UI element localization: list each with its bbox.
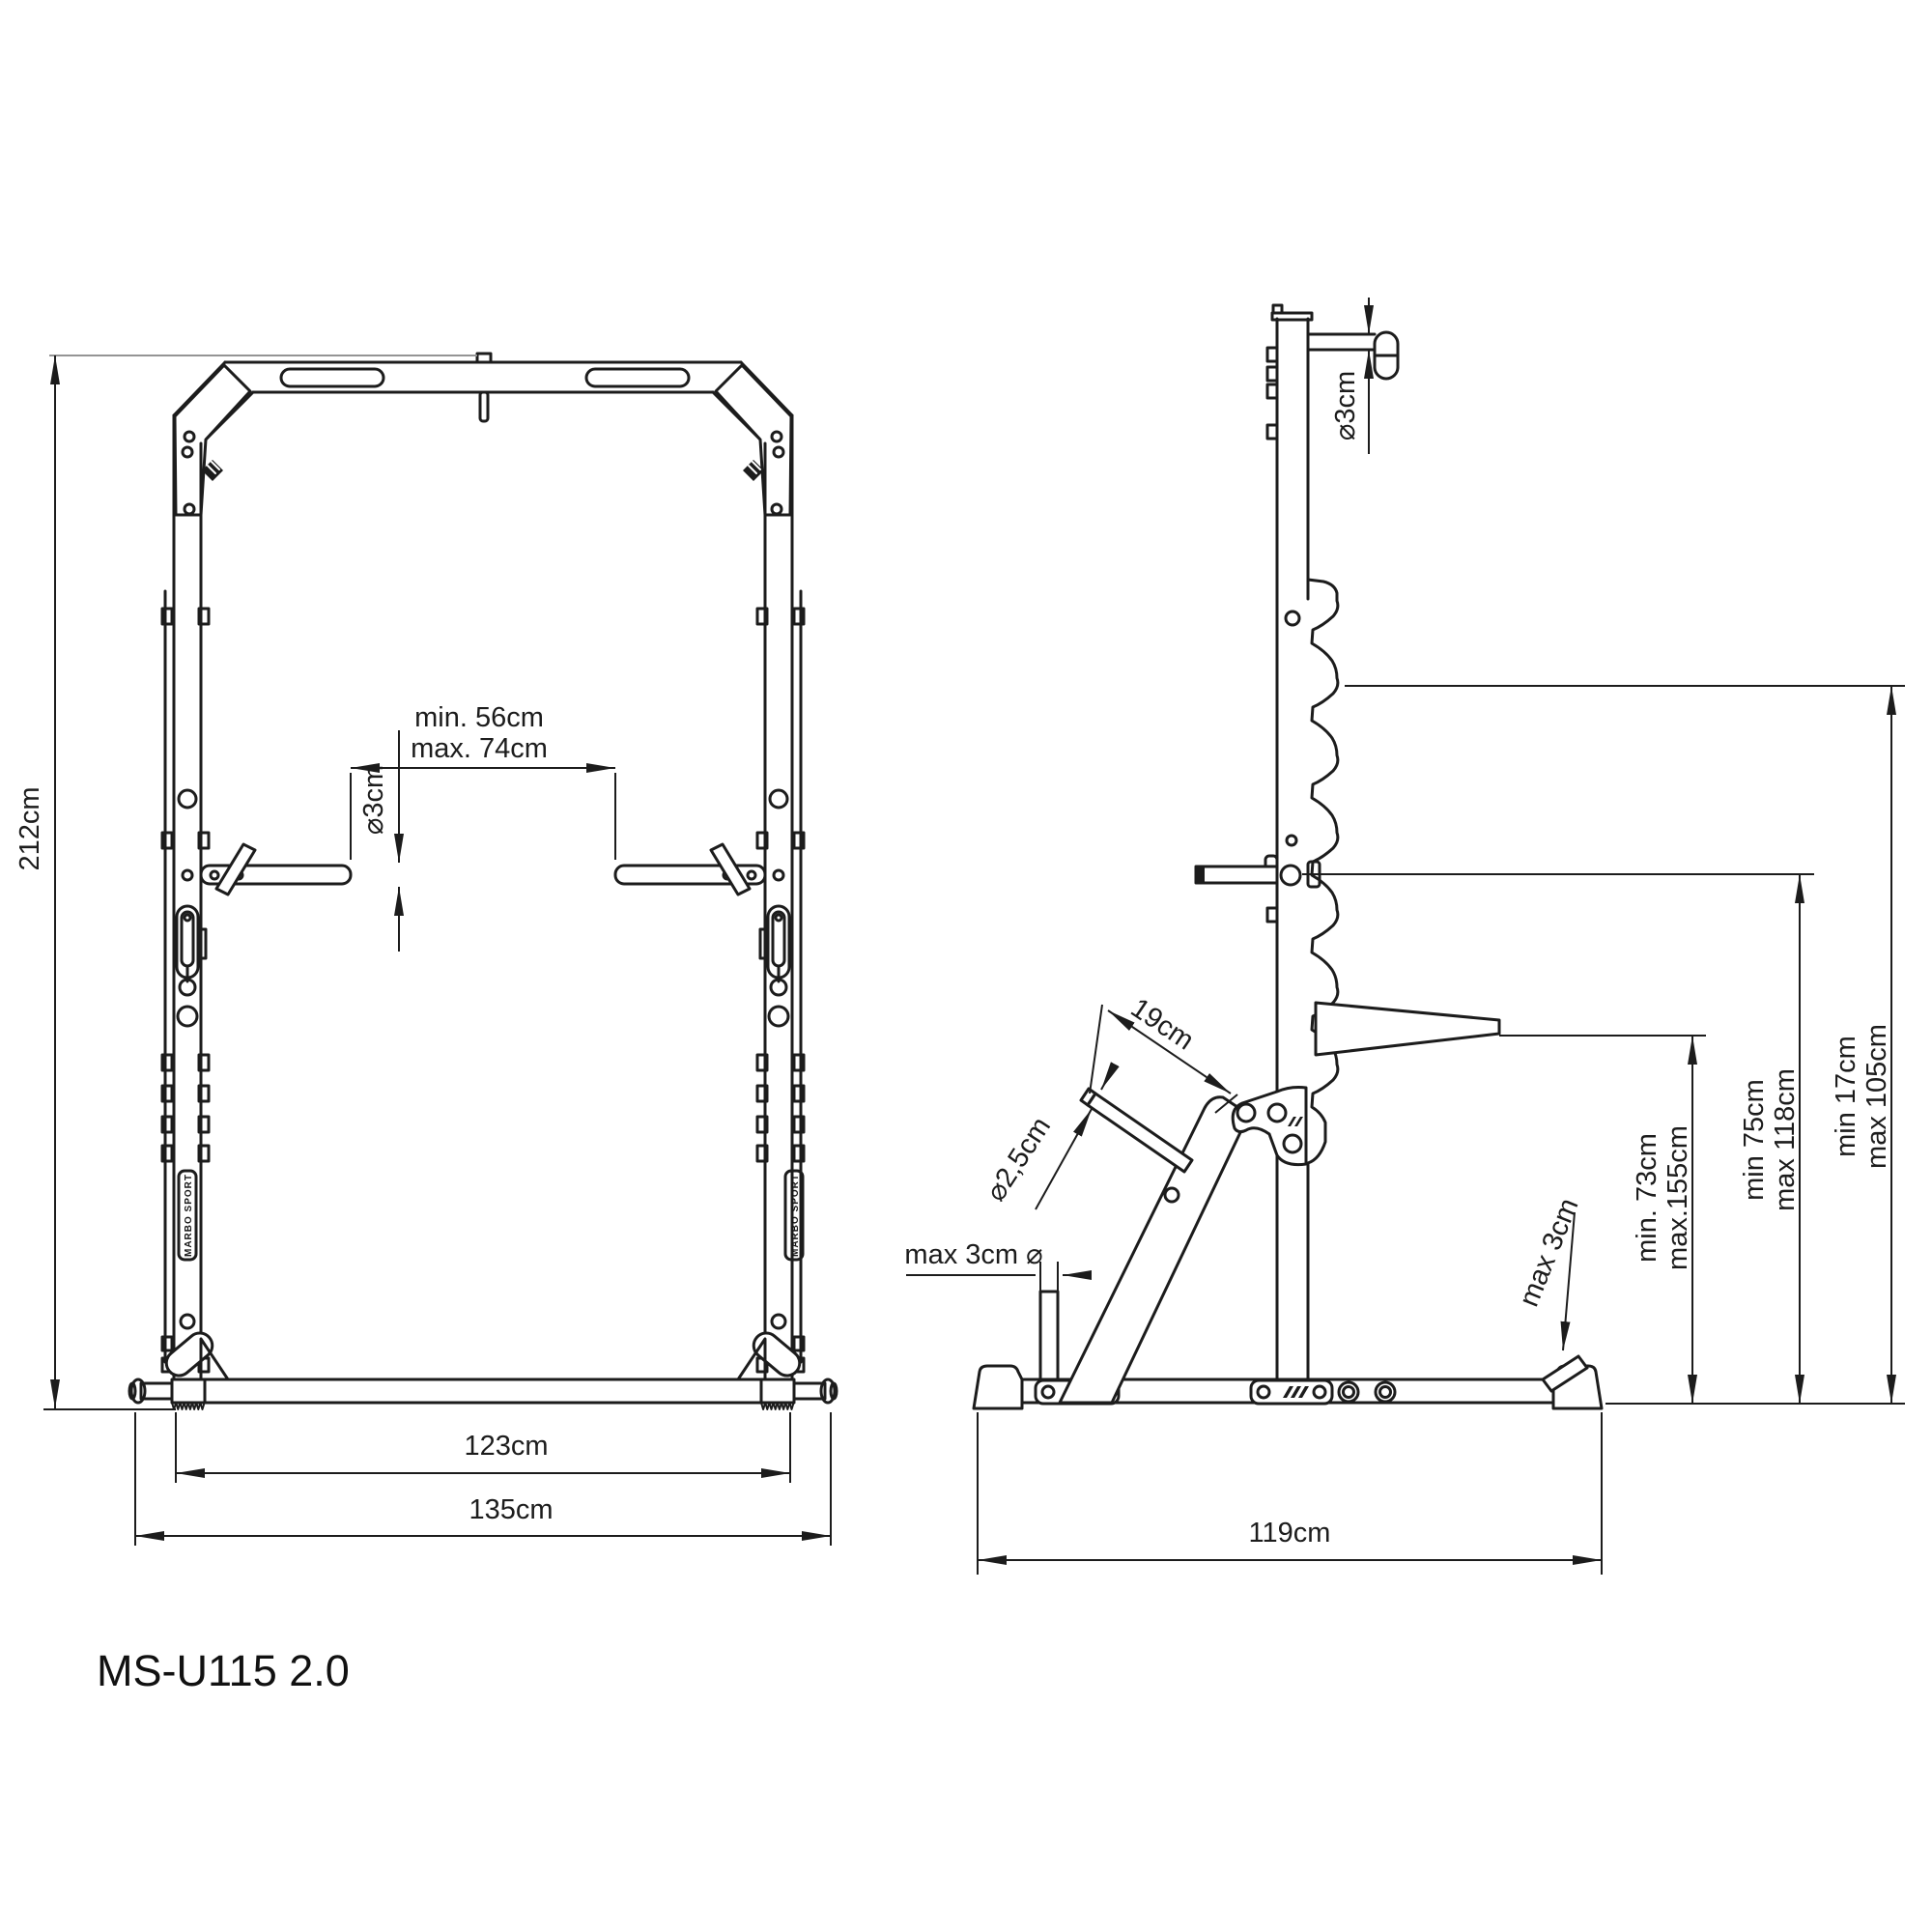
dim-spotter-min-label: min. 73cm (1632, 1133, 1662, 1263)
grip-slot-left (281, 369, 384, 386)
upright-right-features (615, 609, 804, 1372)
j-cup-lever-right (711, 844, 750, 895)
side-view: ⌀3cm 19cm ⌀2,5cm max 3cm ⌀ max 3cm min. … (904, 298, 1905, 1575)
dim-inner-width-label: 123cm (464, 1431, 548, 1462)
dim-storage-max-label: max 105cm (1861, 1024, 1892, 1169)
dim-spotter-max-label: max.155cm (1662, 1125, 1693, 1270)
dim-jcup-max-label: max 118cm (1770, 1068, 1801, 1211)
j-cup-lever-left (216, 844, 255, 895)
j-cup-side (1196, 862, 1320, 887)
front-view: MARBO SPORT MARBO SPORT 212cm min. 56cm … (14, 354, 837, 1546)
dim-hook-spacing-min: min. 56cm (414, 702, 544, 733)
corner-gusset-left (175, 365, 250, 515)
front-base (129, 1328, 837, 1409)
side-foot-front (974, 1366, 1022, 1408)
dim-pullup-diameter-label: ⌀3cm (1330, 371, 1361, 440)
spotter-shelf (1316, 1003, 1499, 1055)
dim-base-depth-label: 119cm (1249, 1518, 1331, 1548)
dim-hook-spacing-max: max. 74cm (411, 733, 548, 764)
center-tab (477, 354, 491, 362)
foot-left (129, 1328, 228, 1409)
foot-right (738, 1328, 837, 1409)
corner-gusset-right (716, 365, 791, 515)
dim-peg-diameter-label: max 3cm ⌀ (904, 1239, 1042, 1270)
brand-sticker-text-left: MARBO SPORT (184, 1174, 194, 1257)
dim-height-label: 212cm (14, 786, 45, 870)
dim-wedge-diameter-label: max 3cm (1514, 1194, 1585, 1311)
band-peg (1040, 1292, 1058, 1379)
center-pin (480, 392, 488, 421)
front-bar (1081, 1089, 1192, 1172)
dim-outer-width-label: 135cm (469, 1494, 553, 1525)
front-dimensions: 212cm min. 56cm max. 74cm ⌀3cm 123cm 135… (14, 355, 831, 1546)
grip-slot-right (586, 369, 689, 386)
base-gusset-rear (1251, 1380, 1332, 1404)
dim-storage-min-label: min 17cm (1831, 1036, 1861, 1157)
pullup-crossmember (174, 354, 792, 443)
brand-sticker-text-right: MARBO SPORT (790, 1174, 801, 1257)
technical-drawing: MARBO SPORT MARBO SPORT 212cm min. 56cm … (0, 0, 1932, 1932)
model-label: MS-U115 2.0 (97, 1646, 350, 1695)
dim-jcup-min-label: min 75cm (1739, 1079, 1770, 1201)
dim-hook-diameter-label: ⌀3cm (358, 765, 389, 835)
strut-gusset (1233, 1088, 1306, 1165)
